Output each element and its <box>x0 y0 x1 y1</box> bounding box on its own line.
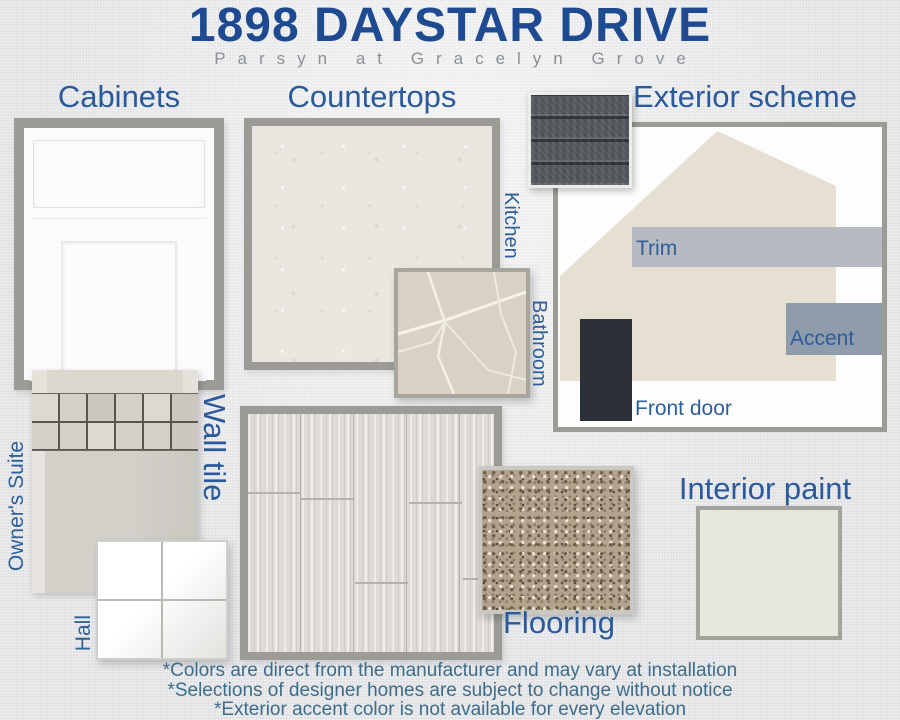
wall-tile-mosaic <box>32 394 198 449</box>
bathroom-countertop-sample <box>394 268 530 398</box>
carpet-sample <box>478 466 634 614</box>
page-subtitle: Parsyn at Gracelyn Grove <box>0 49 900 69</box>
marble-veins <box>398 272 526 394</box>
footnote-line: *Colors are direct from the manufacturer… <box>0 661 900 681</box>
cabinet-door-panel <box>61 241 177 373</box>
exterior-scheme-heading: Exterior scheme <box>633 80 857 114</box>
flooring-heading: Flooring <box>503 606 615 640</box>
kitchen-label: Kitchen <box>499 192 522 259</box>
footnote-line: *Exterior accent color is not available … <box>0 700 900 720</box>
countertops-heading: Countertops <box>244 80 500 114</box>
interior-paint-heading: Interior paint <box>640 472 890 506</box>
front-door-swatch <box>580 319 632 421</box>
plank-seam <box>248 492 300 494</box>
wall-tile-heading: Wall tile <box>197 394 231 501</box>
cabinet-sample <box>14 118 224 390</box>
bathroom-label: Bathroom <box>527 300 550 387</box>
footnotes: *Colors are direct from the manufacturer… <box>0 661 900 720</box>
plank-seam <box>355 582 408 584</box>
interior-paint-swatch <box>696 506 842 640</box>
wall-tile-top-strip <box>32 370 198 394</box>
trim-label: Trim <box>636 237 677 261</box>
owners-suite-label: Owner's Suite <box>5 441 29 571</box>
hall-tile-sample <box>96 540 228 660</box>
plank-seam <box>409 502 462 504</box>
design-board: 1898 DAYSTAR DRIVE Parsyn at Gracelyn Gr… <box>0 0 900 720</box>
cabinet-door <box>30 218 206 381</box>
roof-shingle-sample <box>528 92 632 188</box>
cabinet-drawer-front <box>33 140 205 208</box>
page-title: 1898 DAYSTAR DRIVE <box>0 0 900 52</box>
accent-label: Accent <box>790 327 854 351</box>
hall-label: Hall <box>72 615 96 651</box>
flooring-plank-sample <box>240 406 502 660</box>
footnote-line: *Selections of designer homes are subjec… <box>0 681 900 701</box>
plank-seam <box>301 498 354 500</box>
cabinets-heading: Cabinets <box>14 80 224 114</box>
front-door-label: Front door <box>635 397 732 421</box>
